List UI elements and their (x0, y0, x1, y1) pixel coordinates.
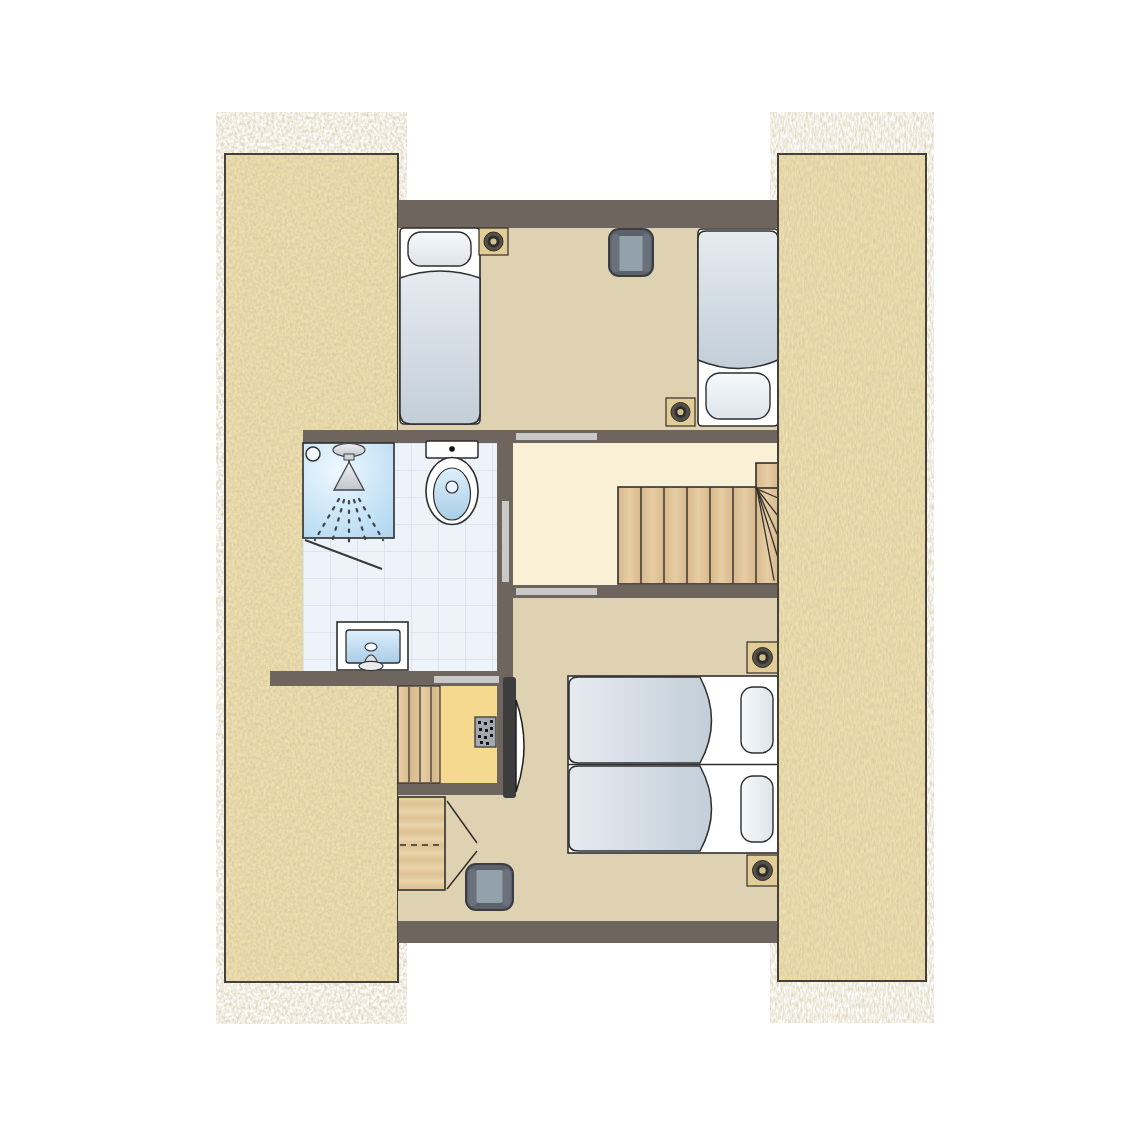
single-bed-top-left (400, 228, 480, 424)
armchair-top (609, 229, 653, 276)
armchair-arm-right (643, 234, 651, 272)
spotlight-3 (747, 642, 778, 673)
duvet (698, 231, 778, 369)
pillow (741, 776, 773, 842)
armchair-arm-left (469, 869, 477, 906)
wall-closet-bottom (398, 783, 513, 795)
door-marker-bathroom (502, 501, 509, 582)
armchair-bottom (466, 864, 513, 910)
roof-band-right (778, 154, 926, 981)
spotlight-1 (479, 228, 508, 255)
pillow (408, 232, 471, 266)
door-marker-closet (434, 676, 499, 683)
twin-beds (568, 676, 778, 853)
door-marker-bedroom-bottom (516, 588, 597, 595)
spotlight-2 (666, 398, 695, 426)
armchair-arm-left (612, 234, 620, 272)
toilet-button (449, 446, 455, 452)
single-bed-top-right (698, 229, 778, 426)
spotlight-4 (747, 855, 778, 886)
control-panel (475, 717, 496, 747)
shower-drain (306, 447, 320, 461)
wall-top (398, 200, 778, 228)
toilet (426, 441, 478, 525)
armchair-arm-right (503, 869, 511, 906)
door-marker-bedroom-top (516, 433, 597, 440)
duvet (569, 677, 712, 763)
floor-plan-canvas (0, 0, 1145, 1145)
stair-top-step (756, 463, 778, 488)
wall-bottom (398, 921, 778, 943)
duvet (400, 271, 480, 424)
washbasin (337, 622, 408, 671)
pillow (706, 373, 770, 419)
washbasin-drain (365, 643, 377, 651)
duvet (569, 766, 712, 851)
pillow (741, 687, 773, 753)
staircase-lower-planks (398, 686, 440, 783)
floor-plan (0, 0, 1145, 1145)
